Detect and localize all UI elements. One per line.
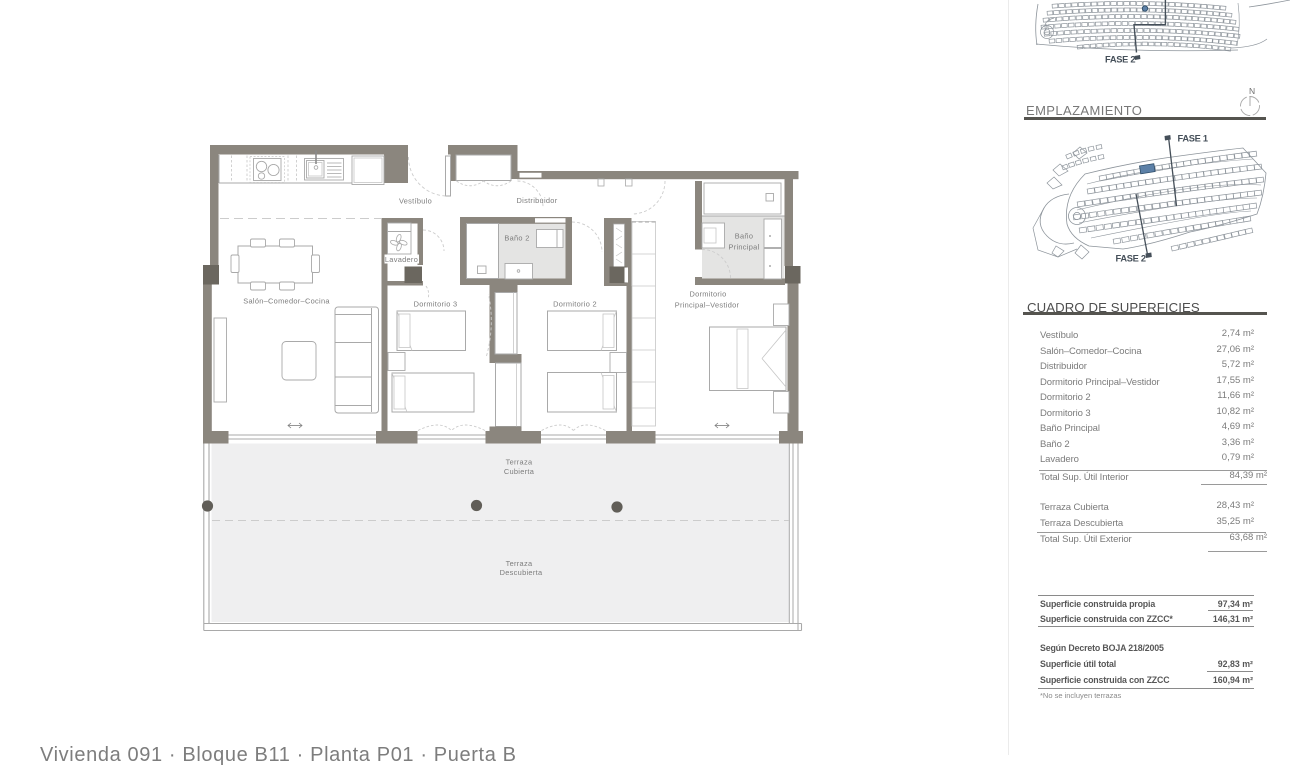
svg-text:FASE 2: FASE 2 <box>1105 55 1135 65</box>
svg-text:N: N <box>1249 86 1255 96</box>
svg-text:Terraza: Terraza <box>506 559 533 568</box>
svg-text:Principal–Vestidor: Principal–Vestidor <box>675 301 740 310</box>
svg-text:Dormitorio 2: Dormitorio 2 <box>553 300 597 309</box>
svg-text:Descubierta: Descubierta <box>500 568 543 577</box>
svg-text:Baño: Baño <box>735 232 753 241</box>
svg-text:Terraza: Terraza <box>506 458 533 467</box>
svg-text:Dormitorio: Dormitorio <box>689 290 726 299</box>
svg-text:Lavadero: Lavadero <box>385 255 418 264</box>
svg-text:FASE 1: FASE 1 <box>1178 134 1208 144</box>
svg-text:Distribuidor: Distribuidor <box>517 196 558 205</box>
svg-text:Dormitorio 3: Dormitorio 3 <box>414 300 458 309</box>
svg-text:Cubierta: Cubierta <box>504 467 535 476</box>
svg-text:Vestíbulo: Vestíbulo <box>399 197 432 206</box>
svg-text:Principal: Principal <box>728 243 759 252</box>
svg-text:Baño 2: Baño 2 <box>504 234 529 243</box>
svg-text:Salón–Comedor–Cocina: Salón–Comedor–Cocina <box>243 297 330 306</box>
svg-text:FASE 2: FASE 2 <box>1116 254 1146 264</box>
